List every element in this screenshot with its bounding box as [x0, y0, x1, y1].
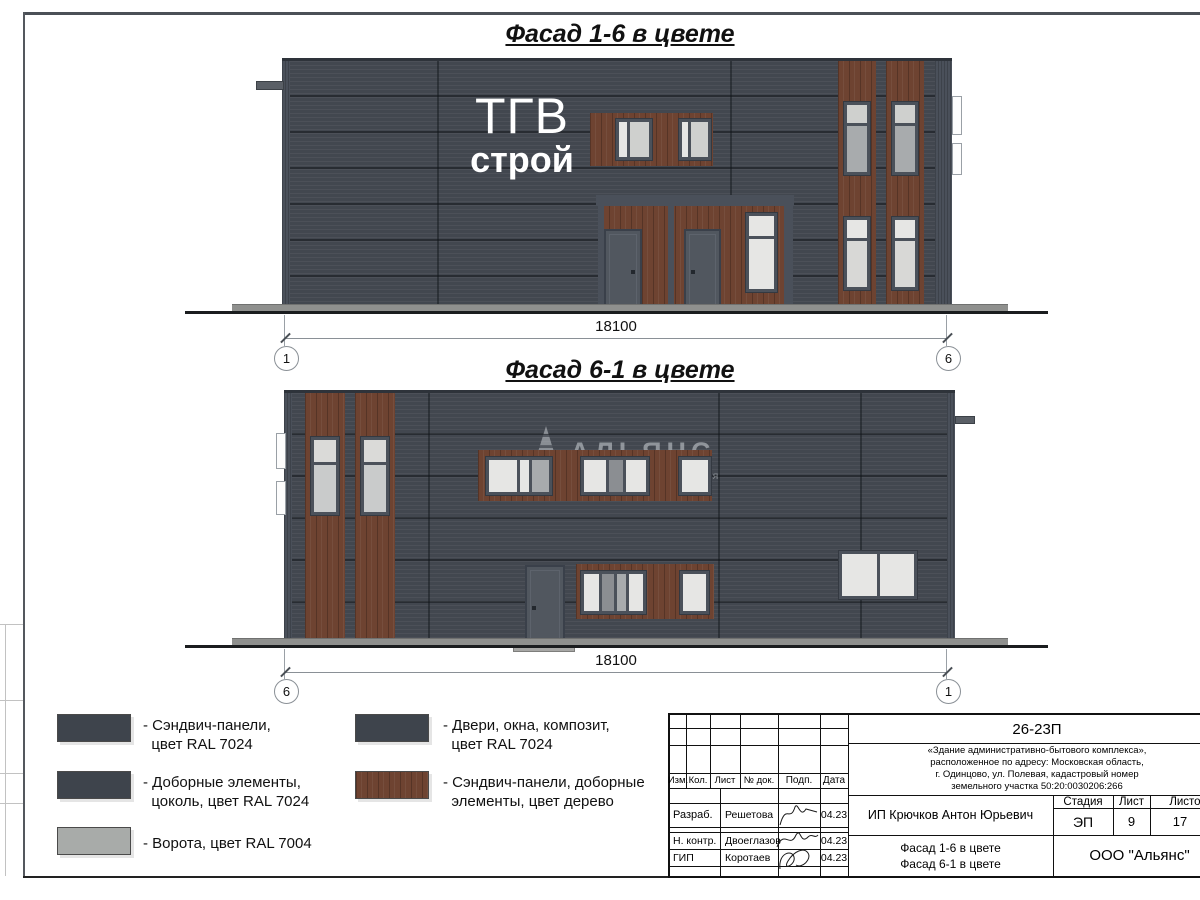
panel-seam: [428, 393, 430, 645]
window: [678, 118, 712, 161]
dimension-line: [285, 672, 947, 673]
window-pane: [602, 574, 614, 611]
window: [310, 436, 340, 516]
window: [360, 436, 390, 516]
facade-6-1-title: Фасад 6-1 в цвете: [420, 356, 820, 385]
entrance-door: [525, 565, 565, 646]
window-pane: [683, 574, 706, 611]
window-pane: [629, 574, 643, 611]
legend-label: - Ворота, цвет RAL 7004: [143, 834, 312, 853]
facade-1-6-view: ТГВ строй: [282, 58, 952, 310]
tb-sheets-value: 17: [1150, 808, 1200, 835]
extension-line: [946, 315, 947, 346]
tb-project-description: «Здание административно-бытового комплек…: [848, 743, 1200, 795]
axis-marker: 6: [936, 346, 961, 371]
window-pane: [691, 122, 708, 157]
window-pane: [895, 126, 915, 172]
wood-strip: [305, 393, 345, 648]
corner-trim: [935, 61, 952, 310]
tb-drawing-title: Фасад 1-6 в цвете Фасад 6-1 в цвете: [848, 835, 1053, 876]
tb-col-kol: Кол.: [686, 773, 710, 788]
window-pane: [682, 460, 708, 492]
wall-protrusion: [256, 81, 284, 90]
legend-label: - Сэндвич-панели, цвет RAL 7024: [143, 716, 271, 754]
window-pane: [364, 465, 386, 512]
drawing-sheet: Фасад 1-6 в цвете ТГВ строй: [0, 0, 1200, 900]
entrance-door: [684, 229, 721, 311]
window-pane: [847, 241, 867, 287]
window: [891, 101, 919, 176]
window-pane: [749, 239, 774, 289]
tb-sheet-label: Лист: [1113, 795, 1150, 808]
tb-company: ООО "Альянс": [1053, 835, 1200, 876]
window: [485, 456, 553, 496]
axis-marker: 1: [274, 346, 299, 371]
legend-label: - Двери, окна, композит, цвет RAL 7024: [443, 716, 610, 754]
tb-role: ГИП: [670, 849, 720, 866]
extension-line: [284, 315, 285, 346]
window-pane: [314, 440, 336, 462]
wood-strip: [355, 393, 395, 648]
window-pane: [364, 440, 386, 462]
window: [615, 118, 653, 161]
window-pane: [584, 460, 606, 492]
downpipe-box: [276, 481, 286, 515]
door-handle: [532, 606, 536, 610]
legend-swatch-wood: [355, 771, 429, 799]
tb-date: 04.23: [820, 803, 848, 827]
tb-col-podp: Подп.: [778, 773, 820, 788]
tb-name: Коротаев: [722, 849, 778, 866]
window-pane: [847, 126, 867, 172]
tb-client: ИП Крючков Антон Юрьевич: [848, 795, 1053, 835]
legend-label: - Сэндвич-панели, доборные элементы, цве…: [443, 773, 645, 811]
title-block: Изм. Кол. Лист № док. Подп. Дата Разраб.…: [668, 713, 1200, 878]
downpipe-box: [276, 433, 286, 469]
window-pane: [609, 460, 622, 492]
axis-marker: 6: [274, 679, 299, 704]
tb-sheets-label: Листов: [1150, 795, 1200, 808]
porch-post: [784, 195, 793, 311]
tb-line: [670, 788, 848, 789]
window-pane: [749, 216, 774, 236]
panel-seam: [718, 393, 720, 645]
panel-seam: [860, 393, 862, 645]
margin-line: [0, 773, 23, 774]
porch-post: [668, 206, 674, 311]
dimension-text: 18100: [566, 318, 666, 335]
window-pane: [520, 460, 529, 492]
tb-name: Двоеглазов: [722, 832, 778, 849]
frame-top-line: [23, 12, 1200, 15]
tb-sheet-value: 9: [1113, 808, 1150, 835]
window: [679, 570, 710, 615]
window-pane: [895, 105, 915, 123]
window: [580, 570, 647, 615]
window-pane: [880, 554, 915, 596]
entrance-door: [604, 229, 642, 311]
legend-swatch-sandwich-panels: [57, 714, 131, 742]
window-pane: [847, 105, 867, 123]
tb-date: 04.23: [820, 849, 848, 866]
window: [891, 216, 919, 291]
door-handle: [691, 270, 695, 274]
signature: [774, 843, 820, 875]
entrance-canopy: [596, 195, 794, 206]
tb-date: 04.23: [820, 832, 848, 849]
margin-line-vertical: [5, 624, 6, 876]
window-pane: [895, 241, 915, 287]
tb-col-izm: Изм.: [670, 773, 686, 788]
door-handle: [631, 270, 635, 274]
window-pane: [617, 574, 626, 611]
dimension-text: 18100: [566, 652, 666, 669]
window: [843, 101, 871, 176]
legend-label: - Доборные элементы, цоколь, цвет RAL 70…: [143, 773, 309, 811]
window: [838, 550, 918, 600]
margin-line: [0, 803, 23, 804]
axis-marker: 1: [936, 679, 961, 704]
legend-swatch-gate: [57, 827, 131, 855]
downpipe-box: [952, 143, 962, 175]
window-pane: [895, 220, 915, 238]
tb-line: [670, 827, 848, 828]
tb-role: Разраб.: [670, 803, 720, 827]
margin-line: [0, 700, 23, 701]
window-pane: [489, 460, 517, 492]
window-pane: [532, 460, 549, 492]
window: [678, 456, 712, 496]
signature: [776, 799, 820, 829]
tb-col-ndok: № док.: [740, 773, 778, 788]
signage-line2: строй: [432, 141, 612, 179]
downpipe-box: [952, 96, 962, 135]
frame-left-line: [23, 12, 25, 878]
window-pane: [626, 460, 646, 492]
wall-protrusion: [955, 416, 975, 424]
tb-name: Решетова: [722, 803, 778, 827]
window-pane: [584, 574, 599, 611]
tb-stage-label: Стадия: [1053, 795, 1113, 808]
tb-col-data: Дата: [820, 773, 848, 788]
margin-line: [0, 624, 23, 625]
ground-line: [185, 311, 1048, 314]
window-pane: [847, 220, 867, 238]
signage-line1: ТГВ: [432, 91, 612, 141]
tb-line: [670, 866, 848, 867]
facade-6-1-view: АЛЬЯНС строительная компания: [284, 390, 955, 645]
window-pane: [314, 465, 336, 512]
corner-trim: [947, 393, 955, 645]
window-pane: [619, 122, 627, 157]
window-pane: [682, 122, 688, 157]
tb-line: [670, 728, 848, 729]
ground-line: [185, 645, 1048, 648]
corner-trim: [282, 61, 290, 310]
window-pane: [842, 554, 877, 596]
window: [580, 456, 650, 496]
corner-trim: [284, 393, 292, 645]
tb-stage-value: ЭП: [1053, 808, 1113, 835]
porch-window: [745, 212, 778, 293]
tb-project-code: 26-23П: [848, 715, 1200, 743]
tb-role: Н. контр.: [670, 832, 720, 849]
window: [843, 216, 871, 291]
legend-swatch-trim-elements: [57, 771, 131, 799]
tb-col-list: Лист: [710, 773, 740, 788]
tgv-stroy-signage: ТГВ строй: [432, 91, 612, 179]
window-pane: [630, 122, 649, 157]
legend-swatch-doors-windows: [355, 714, 429, 742]
tb-line: [670, 745, 848, 746]
dimension-line: [285, 338, 947, 339]
facade-1-6-title: Фасад 1-6 в цвете: [420, 20, 820, 49]
